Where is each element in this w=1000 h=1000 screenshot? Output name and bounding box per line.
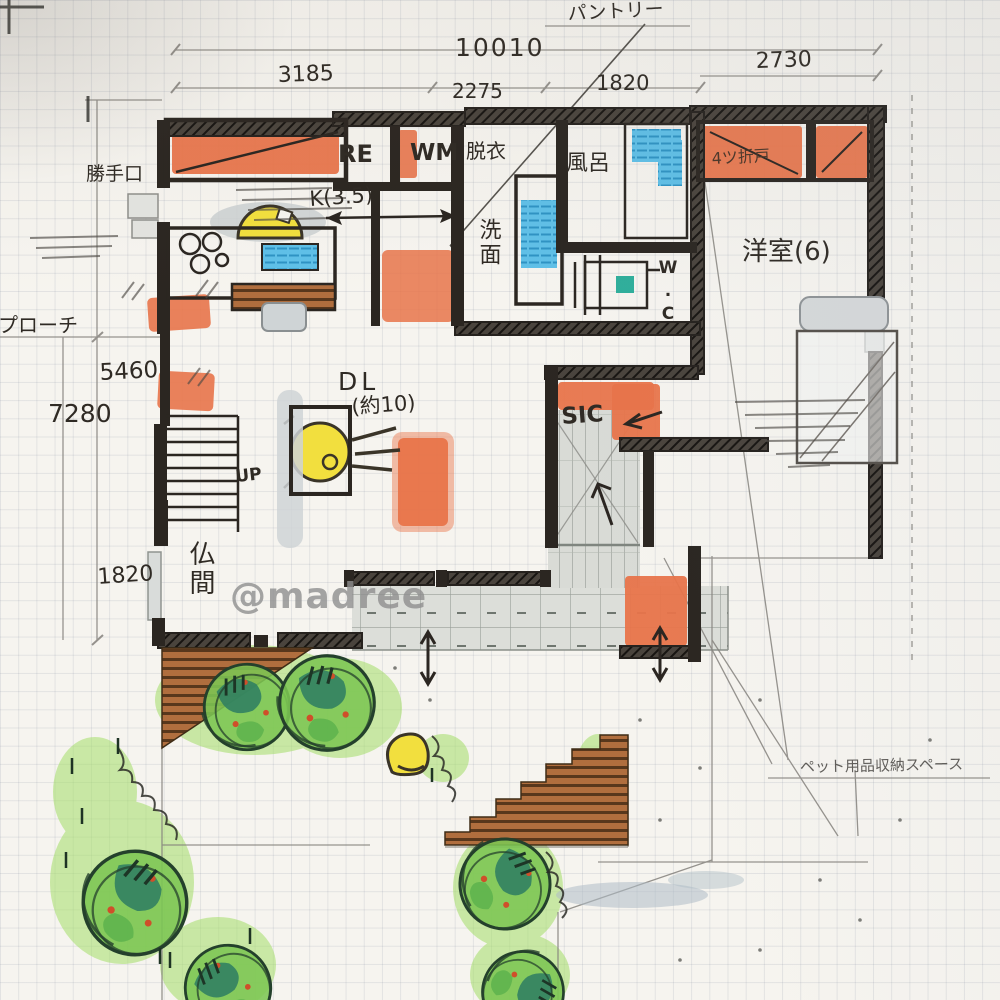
washroom-label: 洗面	[476, 218, 502, 268]
shadow-wash-2	[668, 871, 744, 889]
tree	[202, 664, 289, 750]
kitchen-label: K(3.5)	[309, 183, 374, 211]
bathtub-side	[658, 140, 682, 186]
dim-7280: 7280	[48, 399, 112, 428]
folding-door-label: 4ツ折戸	[711, 146, 770, 168]
corner-marks	[0, 0, 88, 122]
western-room-label: 洋室(6)	[742, 237, 831, 267]
dim-3185: 3185	[277, 61, 334, 88]
sic-label: SIC	[561, 401, 605, 430]
back-door-step	[128, 194, 158, 238]
pet-storage-label: ペット用品収納スペース	[800, 755, 963, 776]
approach-label: アプローチ	[0, 313, 78, 337]
kitchen-width-arrow	[326, 209, 456, 225]
back-door-label: 勝手口	[86, 163, 143, 185]
kitchen-stool	[262, 303, 306, 331]
dl-label: DL	[338, 367, 379, 396]
bath-label: 風呂	[566, 151, 610, 176]
dim-2730: 2730	[755, 47, 812, 74]
butsuma-label: 仏間	[185, 540, 215, 598]
kitchen-sink	[262, 244, 318, 270]
floor-plan-sketch: パントリー 10010 3185 2275 1820 2730 5460 728…	[0, 0, 1000, 1000]
up-label: UP	[234, 464, 262, 487]
changing-label: 脱衣	[466, 139, 506, 163]
terrace-arrow-1	[421, 632, 435, 684]
washer-label: WM	[410, 140, 458, 166]
toilet-accent	[616, 276, 634, 293]
wood-deck-steps	[445, 735, 628, 845]
fridge-label: RE	[338, 140, 373, 168]
dim-1820-left: 1820	[97, 561, 155, 590]
watermark: @madree	[230, 576, 427, 617]
vanity-sink	[521, 200, 557, 268]
dim-total: 10010	[455, 33, 545, 62]
dl-size-label: (約10)	[351, 391, 417, 419]
plan-drawing: パントリー 10010 3185 2275 1820 2730 5460 728…	[0, 0, 1000, 1000]
toilet-label: W.C	[658, 258, 678, 327]
bed	[797, 297, 897, 463]
dim-1820-top: 1820	[596, 71, 649, 95]
dim-2275: 2275	[452, 79, 503, 103]
dim-5460: 5460	[99, 357, 159, 386]
pantry-label: パントリー	[567, 0, 664, 25]
stairs	[156, 416, 238, 546]
